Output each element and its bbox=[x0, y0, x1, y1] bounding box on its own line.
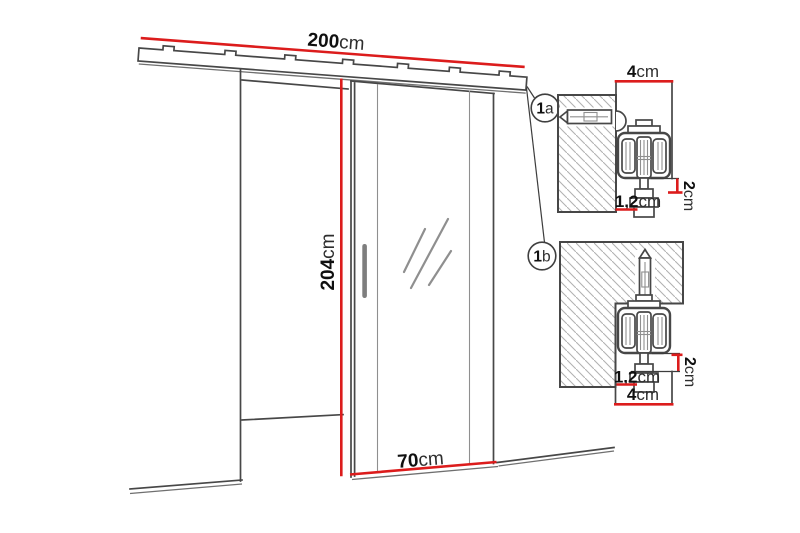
doorway-opening bbox=[130, 69, 614, 494]
door-handle bbox=[362, 244, 367, 298]
callout-a-label: 1a bbox=[536, 101, 554, 118]
floor-line-2 bbox=[499, 451, 615, 466]
detail-b-drop-label: 2cm bbox=[681, 357, 698, 387]
mount-bracket-boss bbox=[616, 111, 626, 131]
rail-width-label: 200cm bbox=[307, 30, 365, 55]
doorway-threshold bbox=[242, 415, 343, 420]
detail-a-drop-label-group: 2cm bbox=[680, 181, 697, 211]
sliding-door-panel bbox=[351, 81, 498, 480]
track-rail-group: 200cm bbox=[138, 17, 529, 93]
detail-a-offset-label: 1,2cm bbox=[615, 192, 661, 211]
detail-a-drop-label: 2cm bbox=[680, 181, 697, 211]
callout-a-leader bbox=[527, 87, 535, 99]
sliding-door-dimension-diagram: 200cm bbox=[0, 0, 800, 533]
mirror-reflection bbox=[404, 219, 451, 288]
door-width-label: 70cm bbox=[397, 448, 445, 473]
baseboard-line-2 bbox=[130, 484, 242, 494]
main-view: 200cm bbox=[130, 17, 614, 493]
detail-a-wall-mount: 4cm 2cm 1,2cm bbox=[558, 62, 697, 217]
doorway-lintel bbox=[242, 80, 348, 89]
baseboard-line-1 bbox=[130, 480, 242, 489]
detail-b-width-label: 4cm bbox=[627, 385, 659, 404]
detail-b-ceiling-mount: 2cm 1,2cm 4cm bbox=[560, 242, 698, 404]
door-height-label-group: 204cm bbox=[318, 233, 339, 290]
detail-a-width-label: 4cm bbox=[627, 62, 659, 81]
callout-b-label: 1b bbox=[533, 249, 550, 266]
floor-line-1 bbox=[497, 448, 614, 463]
detail-b-drop-label-group: 2cm bbox=[681, 357, 698, 387]
door-height-label: 204cm bbox=[318, 233, 339, 290]
wall-anchor-drawing bbox=[559, 108, 615, 127]
